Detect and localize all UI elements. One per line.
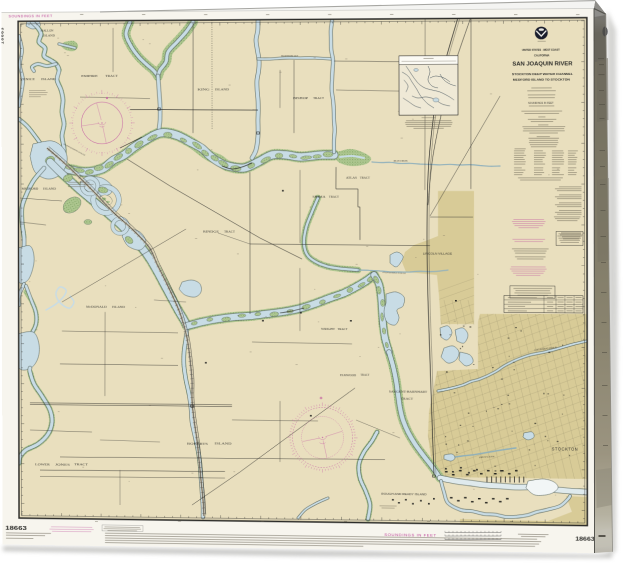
svg-text:SARGENT-BARNHART: SARGENT-BARNHART (389, 390, 428, 393)
svg-text:TRACT: TRACT (313, 96, 324, 100)
svg-text:ROBERTS: ROBERTS (187, 441, 208, 445)
svg-text:TRACT: TRACT (360, 374, 370, 377)
svg-text:STOCKTON: STOCKTON (552, 446, 579, 451)
svg-text:MEDFORD: MEDFORD (22, 186, 39, 190)
svg-text:TRACT: TRACT (360, 175, 370, 179)
svg-text:RINDGE: RINDGE (203, 229, 219, 233)
svg-text:SOUNDINGS IN FEET: SOUNDINGS IN FEET (9, 14, 53, 18)
svg-text:ISLAND: ISLAND (112, 305, 126, 309)
svg-text:TRACT: TRACT (105, 74, 118, 78)
svg-text:MEDFORD ISLAND TO STOCKTON: MEDFORD ISLAND TO STOCKTON (513, 78, 570, 82)
svg-text:BEAR CREEK: BEAR CREEK (393, 159, 408, 162)
svg-text:SHIMA: SHIMA (312, 194, 326, 198)
svg-text:EMPIRE: EMPIRE (81, 74, 98, 78)
svg-text:ISLAND: ISLAND (41, 77, 56, 81)
svg-text:18663: 18663 (575, 536, 594, 542)
svg-text:ATLAS: ATLAS (346, 175, 358, 179)
svg-text:ISLAND: ISLAND (215, 87, 230, 91)
svg-text:TRACT: TRACT (74, 462, 88, 466)
svg-text:ROUGH AND READY ISLAND: ROUGH AND READY ISLAND (381, 493, 427, 497)
svg-text:CALIFORNIA: CALIFORNIA (534, 54, 550, 57)
svg-text:ISLAND: ISLAND (215, 441, 233, 445)
svg-text:TRACT: TRACT (329, 194, 339, 198)
svg-text:McDONALD: McDONALD (86, 305, 108, 309)
svg-text:TRACT: TRACT (224, 229, 235, 233)
svg-text:LINCOLN VILLAGE: LINCOLN VILLAGE (423, 251, 453, 255)
svg-text:BISHOP: BISHOP (293, 96, 308, 100)
svg-text:KING: KING (198, 87, 211, 91)
svg-text:SAN JOAQUIN RIVER: SAN JOAQUIN RIVER (512, 61, 572, 67)
svg-text:MALLON: MALLON (41, 29, 54, 32)
svg-text:JONES: JONES (55, 462, 70, 466)
svg-text:ISLAND: ISLAND (43, 34, 55, 37)
svg-text:TRACT: TRACT (401, 397, 413, 400)
svg-text:SOUNDINGS IN FEET: SOUNDINGS IN FEET (384, 533, 437, 538)
svg-text:TRACT: TRACT (337, 327, 347, 331)
svg-text:LOWER: LOWER (35, 462, 51, 466)
svg-text:18663: 18663 (2, 27, 5, 44)
svg-text:ISLAND: ISLAND (43, 186, 57, 190)
svg-text:18663: 18663 (5, 526, 26, 532)
svg-text:SOUNDINGS IN FEET: SOUNDINGS IN FEET (528, 102, 554, 105)
svg-text:ELMWOOD: ELMWOOD (340, 374, 356, 377)
svg-text:STOCKTON DEEP WATER CHANNEL: STOCKTON DEEP WATER CHANNEL (512, 72, 573, 76)
svg-text:WRIGHT: WRIGHT (321, 327, 335, 331)
svg-text:VENICE: VENICE (20, 77, 35, 81)
svg-text:UNITED STATES - WEST COAST: UNITED STATES - WEST COAST (522, 49, 560, 52)
svg-text:TELEPHONE CUT: TELEPHONE CUT (281, 55, 299, 57)
